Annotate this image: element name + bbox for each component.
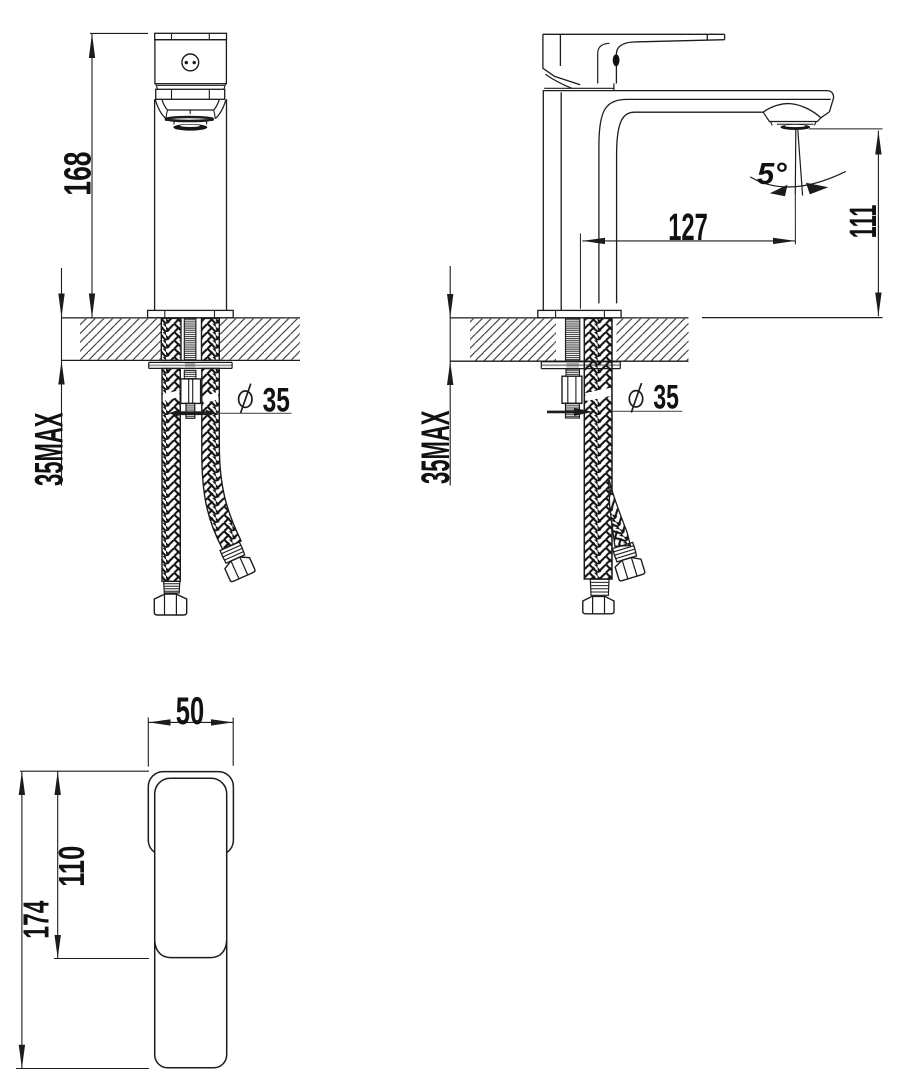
svg-text:50: 50 <box>176 690 204 733</box>
svg-text:35MAX: 35MAX <box>27 412 71 486</box>
svg-text:35: 35 <box>263 382 290 420</box>
svg-text:35: 35 <box>653 379 679 417</box>
svg-text:168: 168 <box>58 152 100 196</box>
svg-text:111: 111 <box>843 205 885 239</box>
svg-text:5°: 5° <box>757 156 787 191</box>
svg-text:35MAX: 35MAX <box>414 410 458 484</box>
svg-text:110: 110 <box>51 846 92 887</box>
svg-text:174: 174 <box>16 901 57 939</box>
svg-text:127: 127 <box>668 207 708 249</box>
